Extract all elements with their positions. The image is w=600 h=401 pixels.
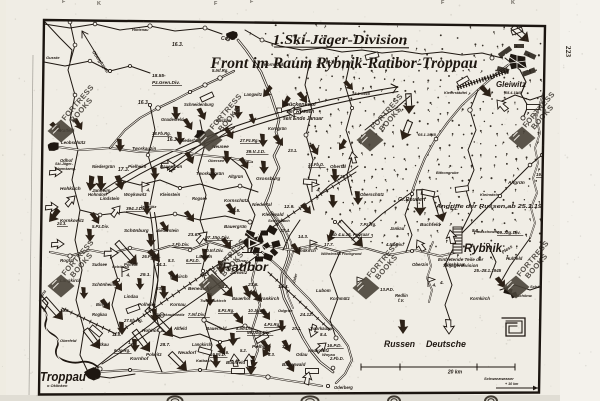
svg-text:99.Jäg.Div.: 99.Jäg.Div. <box>497 230 521 235</box>
svg-text:4.: 4. <box>252 251 257 257</box>
svg-text:Neudorf: Neudorf <box>178 350 197 356</box>
svg-text:8.3.: 8.3. <box>268 352 275 357</box>
svg-text:Tworkaukirch: Tworkaukirch <box>200 298 227 303</box>
svg-text:6.Jg.Rg.: 6.Jg.Rg. <box>114 348 130 353</box>
svg-text:Obertal: Obertal <box>330 164 347 169</box>
svg-text:20 km: 20 km <box>447 370 463 376</box>
svg-text:27.Fb.Rg.: 27.Fb.Rg. <box>123 318 143 323</box>
svg-text:16.5.: 16.5. <box>60 308 70 313</box>
svg-text:Polheim: Polheim <box>138 302 156 307</box>
svg-text:Oberfeld: Oberfeld <box>60 338 77 343</box>
svg-text:Bauergrün: Bauergrün <box>160 164 182 169</box>
svg-text:Wilhelmstal Fischgrund: Wilhelmstal Fischgrund <box>321 252 362 256</box>
svg-text:Niederstein: Niederstein <box>156 228 179 233</box>
svg-text:Bauergrün: Bauergrün <box>224 224 247 229</box>
svg-text:Lindkirch: Lindkirch <box>296 248 316 253</box>
svg-text:Schönau: Schönau <box>112 264 130 269</box>
svg-text:18.Fb.Rg.: 18.Fb.Rg. <box>152 131 171 136</box>
svg-text:Kornkirch: Kornkirch <box>470 296 490 301</box>
svg-text:Schönheim: Schönheim <box>92 282 115 287</box>
svg-text:Oberschütz: Oberschütz <box>360 192 385 197</box>
svg-text:f.V.: f.V. <box>398 298 405 303</box>
svg-text:Rybnik: Rybnik <box>464 241 503 255</box>
svg-text:29.1.: 29.1. <box>339 174 349 179</box>
svg-text:5.Pz.Div.: 5.Pz.Div. <box>92 224 109 229</box>
svg-text:Kieferstädtel: Kieferstädtel <box>444 91 468 95</box>
svg-text:Gr.Reuden: Gr.Reuden <box>398 197 426 203</box>
svg-text:Oberzin: Oberzin <box>412 262 429 267</box>
svg-text:Ab 4.u.15. Februar: Ab 4.u.15. Februar <box>330 232 370 237</box>
svg-text:Odhof: Odhof <box>60 158 73 163</box>
svg-text:11.8.: 11.8. <box>112 332 121 337</box>
svg-text:Tworkaugrün: Tworkaugrün <box>196 171 224 176</box>
svg-text:Schönbach: Schönbach <box>268 218 290 223</box>
svg-text:K: K <box>511 0 515 6</box>
svg-text:Hohkirch: Hohkirch <box>60 186 81 192</box>
svg-text:Lubom: Lubom <box>316 288 331 293</box>
svg-text:17.7.: 17.7. <box>324 242 334 247</box>
svg-text:1.1.: 1.1. <box>128 340 136 345</box>
svg-text:Kornschütz: Kornschütz <box>224 198 249 203</box>
svg-text:Hohhof: Hohhof <box>142 328 159 333</box>
svg-text:Gleiwitz: Gleiwitz <box>496 80 526 89</box>
svg-text:4.Pz.Rg.: 4.Pz.Rg. <box>263 322 280 327</box>
svg-text:25.-28.1.1945: 25.-28.1.1945 <box>473 268 502 273</box>
svg-text:24.12.: 24.12. <box>299 312 313 317</box>
svg-text:19.Pz.D.: 19.Pz.D. <box>210 352 226 357</box>
svg-text:Bauerwald: Bauerwald <box>282 362 306 367</box>
svg-text:Pielhof: Pielhof <box>252 344 268 349</box>
svg-text:Altgrün: Altgrün <box>507 180 525 186</box>
svg-text:Altkau: Altkau <box>95 342 109 347</box>
svg-text:K: K <box>97 1 101 7</box>
svg-text:Leobschütz: Leobschütz <box>61 140 86 145</box>
svg-text:23.6.: 23.6. <box>247 282 259 288</box>
svg-text:4.: 4. <box>126 273 131 278</box>
svg-text:Altfeld: Altfeld <box>173 326 187 331</box>
svg-text:Sudsee: Sudsee <box>92 262 108 267</box>
svg-text:Tworkauzin: Tworkauzin <box>132 146 156 151</box>
svg-text:14.1.: 14.1. <box>156 262 167 268</box>
svg-text:16.3.: 16.3. <box>167 137 178 143</box>
svg-text:18.Fb.D.: 18.Fb.D. <box>308 162 324 167</box>
svg-text:Odgrün: Odgrün <box>278 308 293 313</box>
svg-text:29.1.: 29.1. <box>139 272 151 278</box>
svg-text:8.8.: 8.8. <box>472 228 479 233</box>
svg-text:Rogsee: Rogsee <box>192 196 208 201</box>
svg-text:16.P.D.: 16.P.D. <box>327 343 342 348</box>
svg-text:20.Inf.Div.: 20.Inf.Div. <box>203 248 224 253</box>
svg-text:Oderberg: Oderberg <box>334 385 353 390</box>
svg-text:Korngrün: Korngrün <box>268 126 287 131</box>
svg-text:Obersee: Obersee <box>208 158 225 163</box>
svg-text:4.4.: 4.4. <box>449 206 458 211</box>
svg-text:Langwitz: Langwitz <box>244 92 263 97</box>
svg-text:Kornmütz: Kornmütz <box>330 296 351 301</box>
svg-text:4.4.: 4.4. <box>199 272 208 277</box>
svg-text:4.: 4. <box>316 188 321 193</box>
svg-text:Gnadenfeld: Gnadenfeld <box>161 117 184 122</box>
svg-text:Deutsche: Deutsche <box>426 339 466 349</box>
svg-text:Pielheim: Pielheim <box>128 164 146 169</box>
svg-text:7.Inf.Div.: 7.Inf.Div. <box>188 312 205 317</box>
svg-text:Schwarzwasser: Schwarzwasser <box>484 376 514 381</box>
svg-text:05.4.1945: 05.4.1945 <box>505 91 523 95</box>
svg-text:26.Pz.Rg.: 26.Pz.Rg. <box>141 254 161 259</box>
svg-text:Kornkowitz: Kornkowitz <box>60 218 85 223</box>
svg-text:Polwitz: Polwitz <box>146 352 162 357</box>
svg-text:Hartenau: Hartenau <box>132 28 149 32</box>
svg-text:20.1.: 20.1. <box>291 326 302 331</box>
svg-text:Odkirch: Odkirch <box>170 274 188 279</box>
svg-text:Cosel: Cosel <box>221 36 236 42</box>
svg-text:Kleinstein: Kleinstein <box>480 192 500 197</box>
svg-text:13.4.: 13.4. <box>278 284 289 290</box>
svg-text:Janmütz: Janmütz <box>140 204 156 209</box>
svg-text:8.Pz.Rg.: 8.Pz.Rg. <box>218 308 234 313</box>
svg-text:Buchfeld: Buchfeld <box>420 222 440 227</box>
svg-text:10.Jg.Rg.: 10.Jg.Rg. <box>248 308 267 313</box>
svg-text:Tworkaukowitz: Tworkaukowitz <box>156 312 185 317</box>
svg-text:Woykowitz: Woykowitz <box>124 192 147 197</box>
svg-text:Lindau: Lindau <box>124 294 138 299</box>
svg-text:Niedergrün: Niedergrün <box>92 164 115 169</box>
svg-text:5.2.: 5.2. <box>240 348 247 353</box>
svg-text:Troppau: Troppau <box>40 370 86 384</box>
svg-text:Kleinwald: Kleinwald <box>262 212 284 217</box>
svg-text:+ 10 km: + 10 km <box>505 382 519 386</box>
svg-text:Hultfeld: Hultfeld <box>506 256 523 261</box>
svg-text:25.1.1945: 25.1.1945 <box>351 91 371 96</box>
svg-text:Buchfeld: Buchfeld <box>226 360 245 365</box>
svg-text:Alarmkamp.: Alarmkamp. <box>54 167 76 171</box>
svg-text:Bischkau: Bischkau <box>444 262 465 267</box>
svg-text:1.Ski-Jäger-Division: 1.Ski-Jäger-Division <box>273 32 408 47</box>
svg-text:8.3.: 8.3. <box>168 258 175 263</box>
svg-text:28.7.: 28.7. <box>159 342 170 347</box>
svg-text:4.: 4. <box>439 280 444 285</box>
svg-text:Tworkauau: Tworkauau <box>310 326 332 331</box>
svg-text:Langkirch: Langkirch <box>192 342 212 347</box>
svg-text:12.9.: 12.9. <box>284 204 295 210</box>
svg-text:05.1.1945: 05.1.1945 <box>418 132 437 137</box>
svg-text:2.Fb.Div.: 2.Fb.Div. <box>171 242 189 247</box>
svg-text:Russen: Russen <box>384 339 415 349</box>
svg-text:Bauerhof: Bauerhof <box>232 296 251 301</box>
svg-text:23.6.: 23.6. <box>155 286 166 291</box>
svg-text:28.5.: 28.5. <box>229 208 240 213</box>
svg-text:Krankirch: Krankirch <box>258 296 279 301</box>
svg-text:Katbach: Katbach <box>196 358 212 363</box>
svg-text:223: 223 <box>564 46 573 58</box>
svg-text:Kornau: Kornau <box>170 302 186 307</box>
svg-text:18.55-: 18.55- <box>152 73 166 79</box>
svg-text:8.Inf.Div.: 8.Inf.Div. <box>236 326 253 331</box>
svg-text:Bithongrube: Bithongrube <box>436 171 459 175</box>
svg-text:16.3.: 16.3. <box>172 42 183 48</box>
svg-text:14.3.: 14.3. <box>298 234 308 239</box>
svg-text:Woyau: Woyau <box>322 352 336 357</box>
svg-text:seit Ende Januar: seit Ende Januar <box>283 116 324 122</box>
svg-text:16.3.: 16.3. <box>138 100 149 106</box>
svg-text:Schönburg: Schönburg <box>124 228 149 233</box>
svg-text:8.4.: 8.4. <box>320 332 327 337</box>
svg-text:Front im Raum Rybnik-Ratibor-T: Front im Raum Rybnik-Ratibor-Troppau <box>209 55 477 72</box>
svg-text:7.Pz.Rg.: 7.Pz.Rg. <box>360 222 376 227</box>
svg-text:23.1.: 23.1. <box>287 148 297 153</box>
svg-text:13.P.D.: 13.P.D. <box>380 287 394 292</box>
svg-text:Bauerfeld: Bauerfeld <box>206 326 227 331</box>
svg-text:Jankau: Jankau <box>390 226 405 231</box>
svg-text:Rogkau: Rogkau <box>92 312 108 317</box>
svg-text:der Russen: der Russen <box>287 109 314 115</box>
svg-text:Lindstein: Lindstein <box>100 196 120 201</box>
svg-text:Altgrün: Altgrün <box>227 174 244 179</box>
svg-text:23.6.: 23.6. <box>187 232 199 238</box>
svg-text:Janwitz: Janwitz <box>230 270 248 276</box>
svg-text:Bilsch: Bilsch <box>96 302 109 307</box>
svg-text:Brückenkopf: Brückenkopf <box>283 102 317 108</box>
svg-text:o Oklinken: o Oklinken <box>47 383 68 388</box>
svg-text:Kleinstein: Kleinstein <box>160 192 181 197</box>
svg-text:Janheim: Janheim <box>92 188 110 193</box>
svg-text:Grossburg: Grossburg <box>256 176 280 182</box>
svg-text:Langzin: Langzin <box>196 254 213 259</box>
svg-text:27.Pz.Rg.: 27.Pz.Rg. <box>239 138 259 143</box>
svg-text:4.: 4. <box>432 283 437 288</box>
svg-text:Niedertal: Niedertal <box>252 202 272 207</box>
svg-text:Schneidenburg: Schneidenburg <box>184 102 214 107</box>
svg-text:Gusste: Gusste <box>46 55 60 60</box>
svg-text:Odau: Odau <box>296 352 308 357</box>
